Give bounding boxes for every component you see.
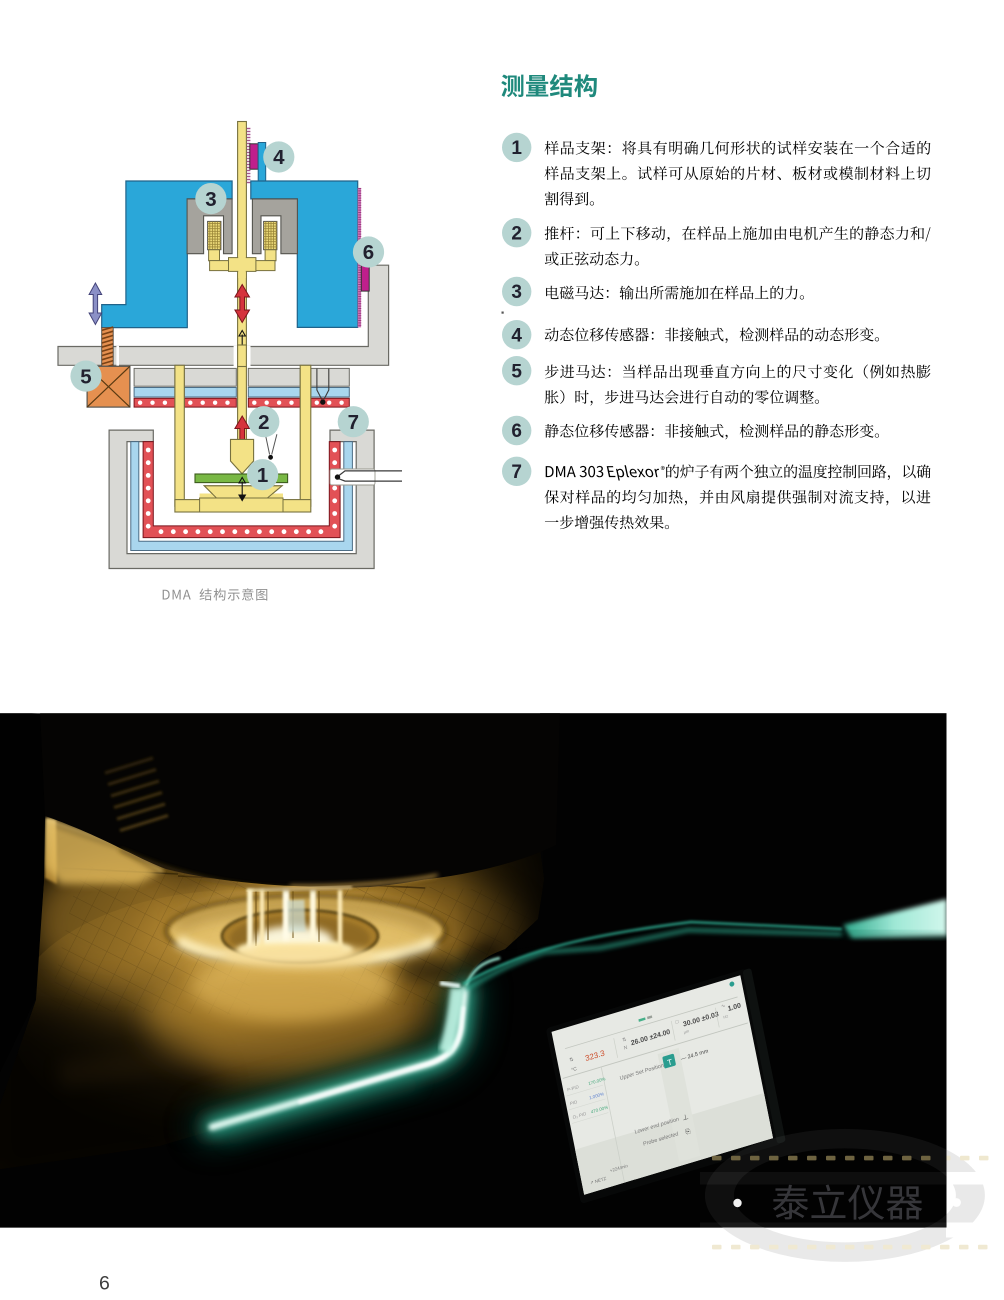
svg-text:6: 6 bbox=[363, 241, 374, 264]
svg-text:1: 1 bbox=[257, 464, 268, 487]
svg-text:7: 7 bbox=[511, 462, 522, 483]
svg-text:5: 5 bbox=[80, 365, 91, 388]
svg-text:2: 2 bbox=[258, 411, 269, 434]
svg-text:4: 4 bbox=[273, 146, 285, 169]
svg-text:6: 6 bbox=[511, 421, 522, 442]
svg-text:1: 1 bbox=[511, 138, 522, 159]
svg-text:2: 2 bbox=[511, 223, 522, 244]
svg-text:4: 4 bbox=[511, 325, 522, 346]
svg-text:3: 3 bbox=[511, 282, 522, 303]
svg-text:7: 7 bbox=[348, 411, 359, 434]
svg-text:3: 3 bbox=[205, 188, 216, 211]
svg-text:5: 5 bbox=[511, 361, 522, 382]
svg-text:6: 6 bbox=[99, 1273, 110, 1295]
